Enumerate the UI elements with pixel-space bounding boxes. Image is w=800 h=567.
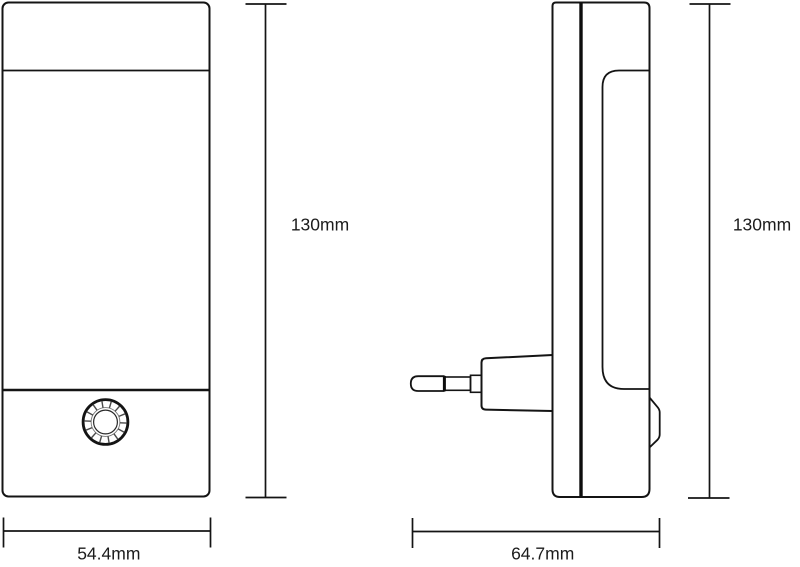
svg-text:54.4mm: 54.4mm — [77, 544, 140, 564]
svg-text:130mm: 130mm — [291, 215, 349, 235]
svg-text:130mm: 130mm — [733, 215, 791, 235]
svg-text:64.7mm: 64.7mm — [511, 544, 574, 564]
